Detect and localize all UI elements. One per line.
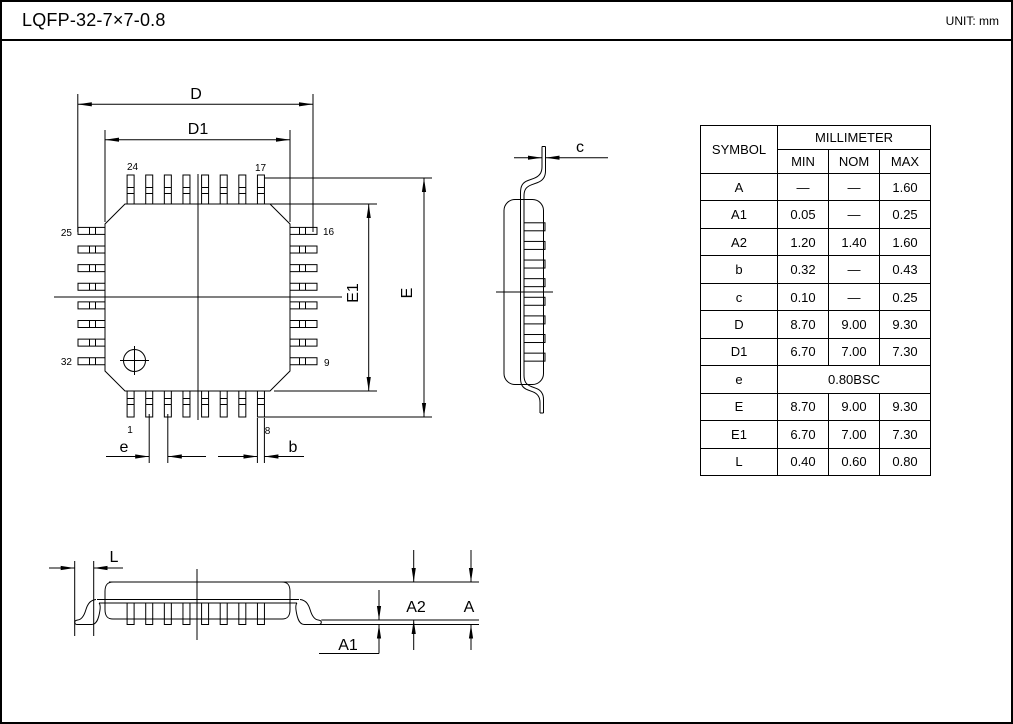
max-cell: 0.80 bbox=[880, 448, 931, 475]
symbol-cell: A1 bbox=[701, 201, 778, 228]
max-cell: 1.60 bbox=[880, 174, 931, 201]
min-cell: — bbox=[778, 174, 829, 201]
dim-c: c bbox=[514, 139, 608, 158]
min-cell: 0.10 bbox=[778, 283, 829, 310]
col-header-max: MAX bbox=[880, 150, 931, 174]
lead bbox=[146, 603, 153, 625]
col-header-millimeter: MILLIMETER bbox=[778, 126, 931, 150]
pin-row-right bbox=[290, 227, 317, 364]
table-row: A10.05—0.25 bbox=[701, 201, 931, 228]
lead bbox=[524, 279, 545, 287]
min-cell: 8.70 bbox=[778, 393, 829, 420]
lead bbox=[290, 265, 317, 272]
dim-label-d1: D1 bbox=[188, 121, 209, 138]
max-cell: 0.25 bbox=[880, 283, 931, 310]
col-header-nom: NOM bbox=[829, 150, 880, 174]
table-row: b0.32—0.43 bbox=[701, 256, 931, 283]
lead bbox=[78, 339, 105, 346]
lead bbox=[78, 358, 105, 365]
table-row: E16.707.007.30 bbox=[701, 421, 931, 448]
side-view: c bbox=[496, 139, 608, 413]
front-pin-tabs bbox=[127, 603, 264, 625]
lead bbox=[524, 316, 545, 324]
pin1-indicator bbox=[120, 346, 149, 375]
pin-number-8: 8 bbox=[265, 426, 271, 437]
symbol-cell: c bbox=[701, 283, 778, 310]
symbol-cell: D bbox=[701, 311, 778, 338]
top-view: D D1 E1 E bbox=[54, 86, 432, 463]
lead bbox=[78, 265, 105, 272]
max-cell: 1.60 bbox=[880, 228, 931, 255]
min-cell: 1.20 bbox=[778, 228, 829, 255]
lead bbox=[78, 321, 105, 328]
table-row: A——1.60 bbox=[701, 174, 931, 201]
nom-cell: 9.00 bbox=[829, 311, 880, 338]
dim-e-pitch: e bbox=[106, 414, 206, 463]
lead bbox=[78, 302, 105, 309]
symbol-cell: E1 bbox=[701, 421, 778, 448]
dim-b: b bbox=[218, 418, 304, 463]
dim-label-a: A bbox=[464, 599, 475, 616]
max-cell: 0.25 bbox=[880, 201, 931, 228]
table-row: D8.709.009.30 bbox=[701, 311, 931, 338]
pin-number-24: 24 bbox=[127, 162, 139, 173]
lead bbox=[146, 175, 153, 204]
lead bbox=[164, 603, 171, 625]
lead bbox=[290, 358, 317, 365]
lead bbox=[290, 302, 317, 309]
pin-number-9: 9 bbox=[324, 358, 330, 369]
lead bbox=[202, 603, 209, 625]
lead bbox=[257, 603, 264, 625]
lead bbox=[290, 283, 317, 290]
lead bbox=[290, 339, 317, 346]
lead bbox=[78, 283, 105, 290]
dim-label-d: D bbox=[190, 86, 202, 103]
pin-row-left bbox=[78, 227, 105, 364]
drawing-sheet: LQFP-32-7×7-0.8 UNIT: mm bbox=[0, 0, 1013, 724]
pin-number-16: 16 bbox=[323, 227, 335, 238]
lead bbox=[524, 241, 545, 249]
min-cell: 0.05 bbox=[778, 201, 829, 228]
min-cell: 6.70 bbox=[778, 338, 829, 365]
nom-cell: — bbox=[829, 283, 880, 310]
lead bbox=[524, 260, 545, 268]
table-row: c0.10—0.25 bbox=[701, 283, 931, 310]
nom-cell: 0.60 bbox=[829, 448, 880, 475]
pin-number-1: 1 bbox=[127, 425, 133, 436]
dim-a: A bbox=[464, 550, 475, 650]
left-gullwing-lead bbox=[75, 600, 100, 625]
lead bbox=[78, 246, 105, 253]
lead bbox=[290, 246, 317, 253]
lead bbox=[127, 175, 134, 204]
symbol-cell: E bbox=[701, 393, 778, 420]
max-cell: 9.30 bbox=[880, 393, 931, 420]
table-row: A21.201.401.60 bbox=[701, 228, 931, 255]
dim-label-c: c bbox=[576, 139, 584, 156]
lead bbox=[239, 603, 246, 625]
dim-label-a2: A2 bbox=[406, 599, 426, 616]
dim-a1: A1 bbox=[319, 590, 379, 654]
dim-label-l: L bbox=[110, 549, 119, 566]
nom-cell: 7.00 bbox=[829, 338, 880, 365]
lead bbox=[524, 335, 545, 343]
nom-cell: 1.40 bbox=[829, 228, 880, 255]
lead bbox=[524, 297, 545, 305]
table-row: E8.709.009.30 bbox=[701, 393, 931, 420]
pin-row-bottom bbox=[127, 391, 264, 417]
table-row: e0.80BSC bbox=[701, 366, 931, 393]
symbol-cell: e bbox=[701, 366, 778, 393]
min-cell: 8.70 bbox=[778, 311, 829, 338]
nom-cell: — bbox=[829, 174, 880, 201]
min-cell: 0.40 bbox=[778, 448, 829, 475]
max-cell: 0.43 bbox=[880, 256, 931, 283]
symbol-cell: A bbox=[701, 174, 778, 201]
table-header-row: SYMBOL MILLIMETER bbox=[701, 126, 931, 150]
lead bbox=[127, 603, 134, 625]
min-cell: 0.32 bbox=[778, 256, 829, 283]
max-cell: 7.30 bbox=[880, 338, 931, 365]
max-cell: 9.30 bbox=[880, 311, 931, 338]
dim-label-e1: E1 bbox=[345, 283, 362, 303]
max-cell: 7.30 bbox=[880, 421, 931, 448]
nom-cell: — bbox=[829, 201, 880, 228]
table-row: D16.707.007.30 bbox=[701, 338, 931, 365]
lead bbox=[220, 175, 227, 204]
dim-label-e: E bbox=[399, 288, 416, 299]
dim-d: D bbox=[78, 86, 313, 232]
pin-row-top bbox=[127, 175, 264, 204]
table-row: L0.400.600.80 bbox=[701, 448, 931, 475]
pin-number-25: 25 bbox=[61, 228, 73, 239]
dim-l: L bbox=[49, 549, 123, 636]
front-view: L A1 A2 A bbox=[49, 549, 479, 654]
lead bbox=[524, 223, 545, 231]
pin-number-17: 17 bbox=[255, 163, 267, 174]
dim-a2: A2 bbox=[406, 550, 426, 650]
dim-label-e-pitch: e bbox=[120, 439, 129, 456]
dimension-table: SYMBOL MILLIMETER MIN NOM MAX A——1.60 A1… bbox=[700, 125, 931, 476]
lead bbox=[290, 321, 317, 328]
lead bbox=[164, 175, 171, 204]
dim-label-b: b bbox=[289, 439, 298, 456]
lead bbox=[78, 227, 105, 234]
symbol-cell: D1 bbox=[701, 338, 778, 365]
lead bbox=[183, 175, 190, 204]
symbol-cell: A2 bbox=[701, 228, 778, 255]
nom-cell: 7.00 bbox=[829, 421, 880, 448]
col-header-symbol: SYMBOL bbox=[701, 126, 778, 174]
symbol-cell: L bbox=[701, 448, 778, 475]
lead bbox=[183, 603, 190, 625]
pin-number-32: 32 bbox=[61, 357, 73, 368]
min-cell: 6.70 bbox=[778, 421, 829, 448]
nom-cell: — bbox=[829, 256, 880, 283]
lead bbox=[220, 603, 227, 625]
symbol-cell: b bbox=[701, 256, 778, 283]
lead bbox=[257, 175, 264, 204]
lead bbox=[239, 175, 246, 204]
lead bbox=[524, 353, 545, 361]
right-gullwing-lead bbox=[296, 600, 321, 625]
nom-cell: 9.00 bbox=[829, 393, 880, 420]
dim-label-a1: A1 bbox=[338, 637, 358, 654]
lead bbox=[202, 175, 209, 204]
col-header-min: MIN bbox=[778, 150, 829, 174]
span-cell: 0.80BSC bbox=[778, 366, 931, 393]
